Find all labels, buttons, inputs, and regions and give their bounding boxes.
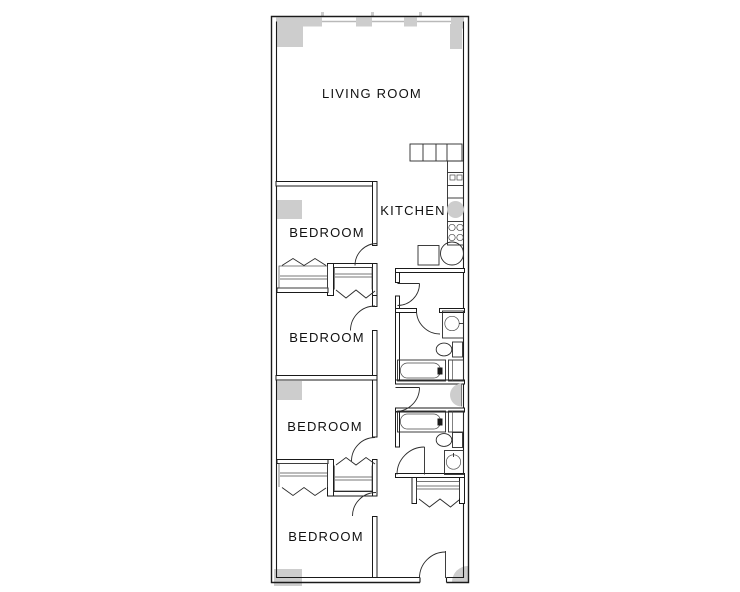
tub-side-cabinet <box>449 411 464 432</box>
wall-segment-bedroom1-right <box>373 182 378 246</box>
window-wall <box>276 12 464 29</box>
bedroom1-label: BEDROOM <box>289 225 365 240</box>
closet-bedroom3 <box>335 458 376 492</box>
wall-segment <box>396 296 400 310</box>
column-left-upper <box>277 200 302 219</box>
closet-bedroom4 <box>279 464 328 496</box>
bathroom2-fixtures <box>398 411 464 475</box>
closet-box <box>279 464 328 488</box>
wall-segment <box>396 273 400 283</box>
bath2-door-arc <box>397 447 425 475</box>
wall-segment-bedroom2-bedroom3 <box>276 376 377 381</box>
floor-plan-page: LIVING ROOM KITCHEN BEDROOM BEDROOM BEDR… <box>0 0 740 592</box>
closet-hall <box>417 482 460 508</box>
interior-walls <box>276 182 465 578</box>
entry-opening <box>420 575 447 586</box>
wall-segment-kitchen-bottom <box>396 269 465 273</box>
wall-segment-hall-closet-left <box>412 478 417 504</box>
niche-half-round <box>450 384 462 407</box>
four-burner-range <box>449 224 463 240</box>
corner-cabinet <box>418 246 439 266</box>
bifold-door-chevrons <box>282 488 326 496</box>
toilet-bowl <box>436 343 452 356</box>
living-room-label: LIVING ROOM <box>322 86 422 101</box>
burner <box>457 234 463 240</box>
wall-segment-bedroom4-right <box>373 517 378 578</box>
burner <box>449 234 455 240</box>
bedroom3-label: BEDROOM <box>287 419 363 434</box>
tub-faucet <box>438 368 443 375</box>
closet-wall <box>277 460 328 464</box>
bathtub-basin <box>401 414 441 429</box>
wall-segment-hall-closet-right <box>460 478 465 504</box>
toilet-tank <box>453 342 463 357</box>
exterior-wall-outer <box>272 17 469 583</box>
wall-segment-bedroom1-top <box>276 182 377 187</box>
toilet-bowl <box>436 434 452 447</box>
wall-segment-bedroom2-right <box>373 331 378 376</box>
sink-bowl <box>445 316 459 330</box>
window-mullion <box>404 18 417 27</box>
wall-segment-bedroom3-right <box>373 380 378 437</box>
toilet-tank <box>453 433 463 448</box>
closet-bedroom1 <box>279 259 328 289</box>
closet-wall <box>334 492 378 497</box>
bedroom2-label: BEDROOM <box>289 330 365 345</box>
bath1-door-arc <box>417 311 441 335</box>
structural-columns <box>274 24 468 586</box>
burner <box>449 224 455 230</box>
bedroom1-door-arc <box>355 244 377 266</box>
vanity-sink <box>443 311 464 338</box>
bathroom1-fixtures <box>398 311 464 381</box>
bifold-door-chevrons <box>336 290 375 298</box>
kitchen-sink <box>447 201 464 218</box>
tub-faucet <box>438 419 443 426</box>
closet-box <box>335 268 373 290</box>
bedroom3-door-arc <box>352 438 376 462</box>
column-bottom-right <box>452 566 468 582</box>
bedroom2-door-arc <box>351 306 376 331</box>
entry-door-arc <box>420 552 446 578</box>
bifold-door-chevrons <box>282 259 326 266</box>
wall-pier <box>276 18 322 27</box>
dishwasher <box>457 175 462 180</box>
closet-box <box>279 266 328 288</box>
closet-box <box>417 482 460 499</box>
column-top-left <box>277 26 303 47</box>
wall-segment-bath1-top <box>440 309 465 313</box>
closet-wall <box>277 288 328 293</box>
bifold-door-chevrons <box>419 499 459 507</box>
dishwasher <box>450 175 455 180</box>
burner <box>457 224 463 230</box>
kitchen-label: KITCHEN <box>380 203 445 218</box>
bedroom4-label: BEDROOM <box>288 529 364 544</box>
window-mullion <box>356 18 372 27</box>
column-left-lower <box>277 381 302 400</box>
bathtub-basin <box>401 363 441 378</box>
closet-divider-wall <box>328 460 334 497</box>
wall-segment <box>373 296 378 307</box>
closet-bedroom2 <box>335 268 376 299</box>
wall-segment-bath1-top <box>396 309 417 313</box>
floor-plan-drawing: LIVING ROOM KITCHEN BEDROOM BEDROOM BEDR… <box>0 0 740 592</box>
closet-box <box>335 466 373 492</box>
wall-pier <box>451 18 464 29</box>
tub-side-cabinet <box>449 360 464 381</box>
wall-segment <box>373 460 378 497</box>
storage-door-arc <box>398 284 420 306</box>
bifold-door-chevrons <box>336 458 375 466</box>
